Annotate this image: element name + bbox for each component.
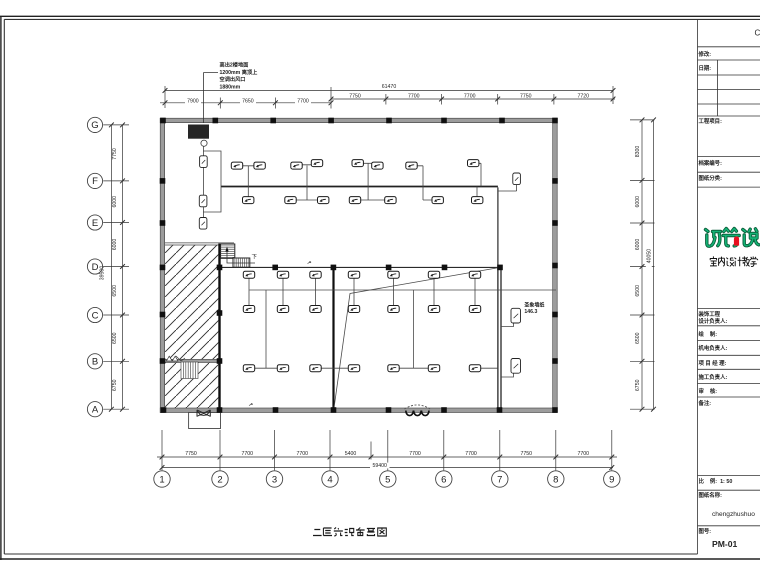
svg-text:5: 5 xyxy=(385,474,390,485)
svg-text:61470: 61470 xyxy=(382,84,397,90)
svg-text:圣象墙纸: 圣象墙纸 xyxy=(524,302,544,309)
svg-text:8: 8 xyxy=(553,474,558,485)
svg-text:C: C xyxy=(92,310,99,321)
svg-text:6000: 6000 xyxy=(112,239,118,251)
svg-text:1200mm 离顶上: 1200mm 离顶上 xyxy=(220,68,259,76)
svg-text:2: 2 xyxy=(217,474,222,485)
svg-text:6500: 6500 xyxy=(635,332,641,344)
svg-text:施工负责人:: 施工负责人: xyxy=(699,373,728,381)
svg-text:59400: 59400 xyxy=(372,463,387,469)
svg-text:日期:: 日期: xyxy=(699,64,712,72)
svg-text:C: C xyxy=(755,29,760,38)
svg-text:审 核:: 审 核: xyxy=(699,387,718,395)
svg-text:图纸名称:: 图纸名称: xyxy=(699,491,723,499)
svg-text:7700: 7700 xyxy=(578,451,590,457)
svg-text:9: 9 xyxy=(609,474,614,485)
svg-text:项 目 经 理:: 项 目 经 理: xyxy=(699,359,727,367)
svg-text:A: A xyxy=(92,405,99,416)
svg-text:G: G xyxy=(91,120,98,131)
svg-text:7750: 7750 xyxy=(520,93,532,99)
svg-text:高出2楼地面: 高出2楼地面 xyxy=(220,61,249,69)
svg-text:E: E xyxy=(92,218,98,229)
svg-text:3: 3 xyxy=(272,474,277,485)
svg-text:7750: 7750 xyxy=(349,93,361,99)
svg-text:7700: 7700 xyxy=(408,93,420,99)
svg-text:D: D xyxy=(92,262,99,273)
svg-text:7700: 7700 xyxy=(297,98,309,104)
svg-text:7700: 7700 xyxy=(297,451,309,457)
svg-text:7750: 7750 xyxy=(521,451,533,457)
svg-text:7650: 7650 xyxy=(242,98,254,104)
svg-text:7720: 7720 xyxy=(578,93,590,99)
svg-text:装饰工程: 装饰工程 xyxy=(698,310,721,318)
svg-text:6: 6 xyxy=(441,474,446,485)
svg-text:4: 4 xyxy=(327,474,332,485)
svg-text:设计负责人:: 设计负责人: xyxy=(699,317,728,325)
svg-text:7: 7 xyxy=(497,474,502,485)
svg-text:6500: 6500 xyxy=(635,285,641,297)
svg-text:146.3: 146.3 xyxy=(524,309,537,315)
svg-text:B: B xyxy=(92,357,98,368)
svg-text:机电负责人:: 机电负责人: xyxy=(699,344,728,352)
svg-text:40050: 40050 xyxy=(647,249,653,264)
svg-text:F: F xyxy=(92,176,98,187)
svg-text:下: 下 xyxy=(252,254,258,261)
svg-text:8300: 8300 xyxy=(635,146,641,158)
svg-text:5400: 5400 xyxy=(345,451,357,457)
svg-text:chengzhushuo: chengzhushuo xyxy=(712,511,755,518)
svg-text:备注:: 备注: xyxy=(698,399,712,407)
svg-text:7900: 7900 xyxy=(187,98,199,104)
svg-text:工程项目:: 工程项目: xyxy=(699,117,723,125)
svg-text:空调出风口: 空调出风口 xyxy=(220,75,246,83)
svg-text:图纸分类:: 图纸分类: xyxy=(699,174,723,182)
svg-text:比 例: 1: 50: 比 例: 1: 50 xyxy=(699,477,733,485)
svg-text:6750: 6750 xyxy=(635,379,641,391)
svg-text:图号:: 图号: xyxy=(699,527,712,535)
svg-text:7750: 7750 xyxy=(185,451,197,457)
svg-text:1880mm: 1880mm xyxy=(220,84,241,90)
svg-text:7750: 7750 xyxy=(112,148,118,160)
svg-text:6000: 6000 xyxy=(112,196,118,208)
svg-text:7700: 7700 xyxy=(242,451,254,457)
svg-text:修改:: 修改: xyxy=(698,50,712,58)
svg-text:6000: 6000 xyxy=(635,239,641,251)
svg-text:6500: 6500 xyxy=(112,285,118,297)
svg-text:绘 制:: 绘 制: xyxy=(699,330,718,338)
svg-text:6500: 6500 xyxy=(112,332,118,344)
svg-text:7700: 7700 xyxy=(464,93,476,99)
svg-text:7700: 7700 xyxy=(409,451,421,457)
svg-text:6000: 6000 xyxy=(635,196,641,208)
svg-text:档案编号:: 档案编号: xyxy=(698,159,723,167)
svg-text:PM-01: PM-01 xyxy=(712,539,738,549)
svg-text:1: 1 xyxy=(159,474,164,485)
svg-text:7700: 7700 xyxy=(465,451,477,457)
svg-text:6750: 6750 xyxy=(112,379,118,391)
